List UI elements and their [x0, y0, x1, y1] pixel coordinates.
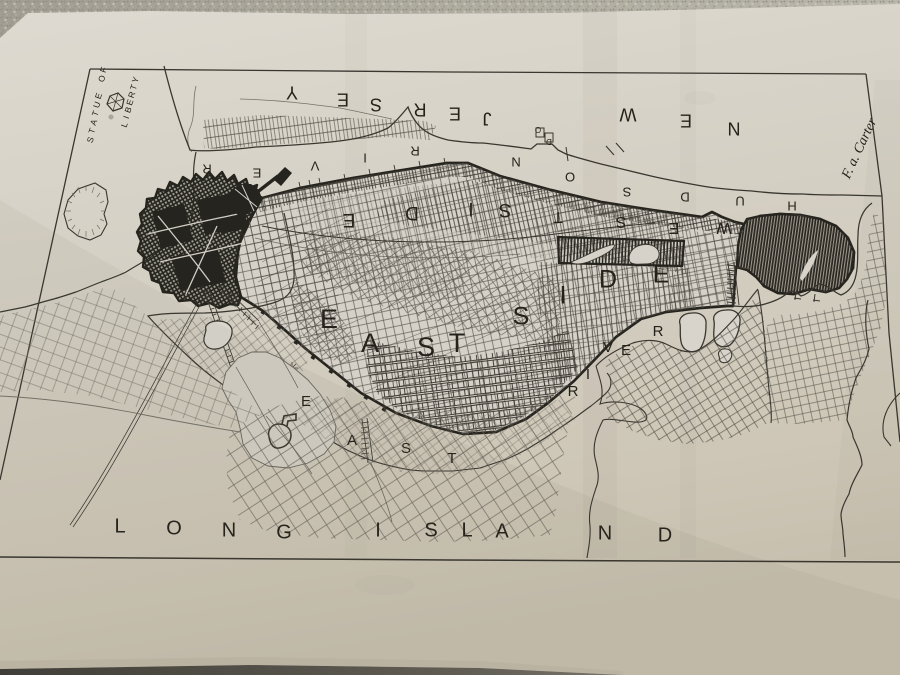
svg-text:R: R: [410, 144, 419, 159]
svg-text:I: I: [363, 151, 367, 166]
svg-text:R: R: [414, 99, 427, 119]
svg-text:D: D: [680, 190, 689, 205]
svg-text:I: I: [586, 366, 590, 383]
svg-text:S: S: [622, 185, 631, 200]
svg-text:W: W: [620, 104, 637, 124]
svg-text:A: A: [361, 328, 379, 358]
svg-text:I: I: [468, 198, 473, 219]
svg-text:W: W: [716, 219, 732, 236]
svg-text:I: I: [560, 282, 567, 310]
svg-text:O: O: [565, 170, 575, 185]
svg-text:E: E: [337, 89, 349, 109]
svg-text:U: U: [735, 194, 744, 209]
svg-text:E: E: [680, 110, 692, 130]
svg-text:E: E: [621, 342, 631, 359]
svg-text:N: N: [511, 155, 520, 170]
svg-text:T: T: [553, 208, 563, 225]
svg-text:H: H: [787, 199, 796, 214]
svg-text:E: E: [653, 261, 670, 289]
svg-text:S: S: [616, 213, 627, 230]
svg-text:E: E: [669, 219, 680, 236]
svg-text:R: R: [653, 323, 664, 340]
svg-text:O: O: [535, 125, 541, 134]
svg-text:V: V: [310, 159, 319, 174]
svg-text:E: E: [252, 166, 261, 181]
svg-text:E: E: [320, 304, 338, 334]
svg-text:S: S: [513, 303, 530, 331]
svg-text:D: D: [546, 137, 552, 146]
svg-text:R: R: [202, 162, 211, 177]
svg-text:T: T: [449, 328, 466, 358]
svg-text:E: E: [449, 103, 461, 123]
svg-text:N: N: [728, 118, 741, 138]
svg-text:S: S: [370, 94, 382, 114]
svg-text:R: R: [568, 383, 579, 400]
svg-text:E: E: [343, 209, 356, 230]
svg-text:S: S: [417, 332, 435, 362]
svg-text:J: J: [483, 108, 492, 128]
svg-text:D: D: [599, 266, 617, 294]
svg-text:S: S: [499, 199, 512, 220]
svg-text:D: D: [405, 202, 419, 223]
svg-text:Y: Y: [286, 82, 298, 102]
svg-text:V: V: [603, 339, 613, 356]
